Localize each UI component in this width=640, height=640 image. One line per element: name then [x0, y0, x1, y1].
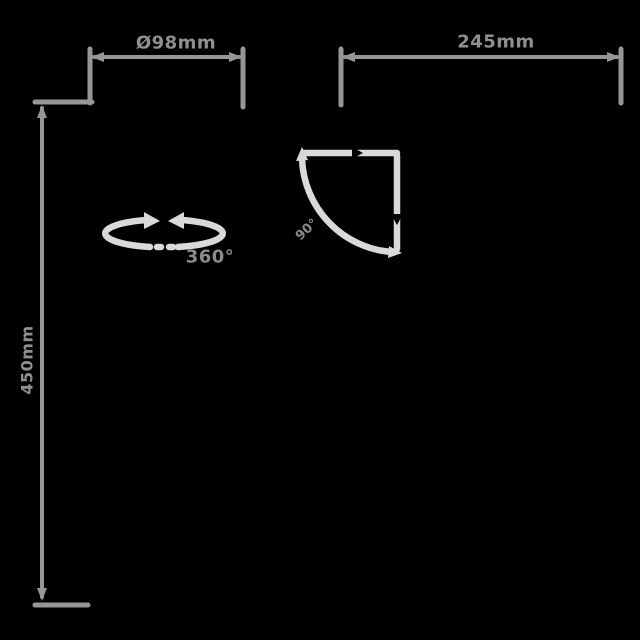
- arrow-right-icon: [229, 52, 242, 62]
- height-dimension: [35, 102, 92, 605]
- sector-notch-top-icon: [352, 147, 363, 159]
- diameter-dimension: [90, 49, 243, 107]
- arrow-left-icon: [342, 52, 355, 62]
- arrow-down-icon: [37, 588, 47, 601]
- rotation-arc-right: [178, 220, 223, 247]
- diameter-dimension-label: Ø98mm: [136, 33, 216, 54]
- rotation-arrowhead-left-icon: [168, 212, 184, 229]
- sector-notch-right-icon: [391, 214, 403, 225]
- height-dimension-label: 450mm: [18, 325, 37, 394]
- width-dimension: [341, 49, 621, 105]
- dimension-diagram: Ø98mm 245mm 450mm 360° 90°: [0, 0, 640, 640]
- width-dimension-label: 245mm: [457, 32, 535, 53]
- sector-arc: [302, 159, 392, 252]
- rotation-arrowhead-right-icon: [144, 212, 160, 229]
- arrow-up-icon: [37, 105, 47, 118]
- rotation-angle-label: 360°: [186, 247, 235, 268]
- arrow-left-icon: [91, 52, 104, 62]
- tilt-angle-sector-icon: [296, 147, 403, 258]
- diagram-linework: [0, 0, 640, 640]
- rotation-arc-left: [105, 220, 150, 247]
- 360-rotation-arrows-icon: [105, 212, 223, 247]
- arrow-right-icon: [607, 52, 620, 62]
